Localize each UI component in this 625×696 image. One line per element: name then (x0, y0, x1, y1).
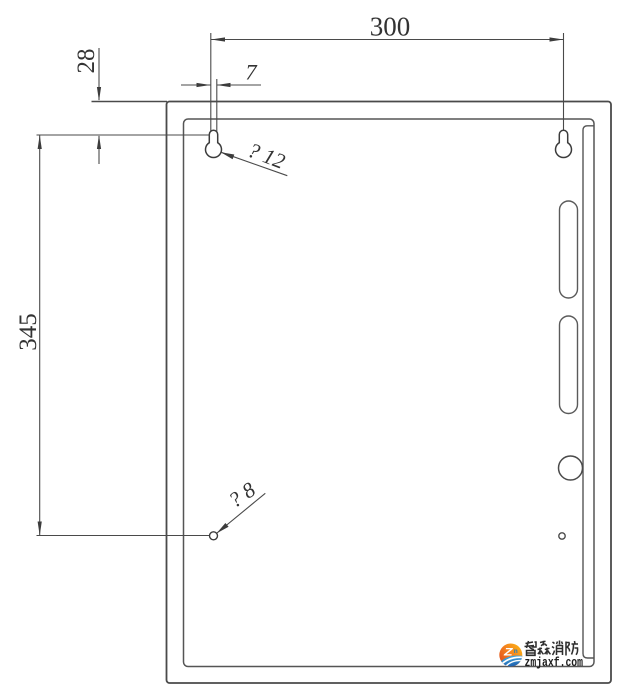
svg-text:345: 345 (15, 313, 42, 351)
svg-text:7: 7 (245, 60, 258, 85)
svg-text:n: n (514, 648, 518, 655)
svg-text:28: 28 (73, 49, 100, 74)
svg-text:Z: Z (503, 646, 514, 658)
svg-text:zmjaxf.com: zmjaxf.com (525, 655, 584, 670)
svg-text:300: 300 (370, 12, 411, 42)
